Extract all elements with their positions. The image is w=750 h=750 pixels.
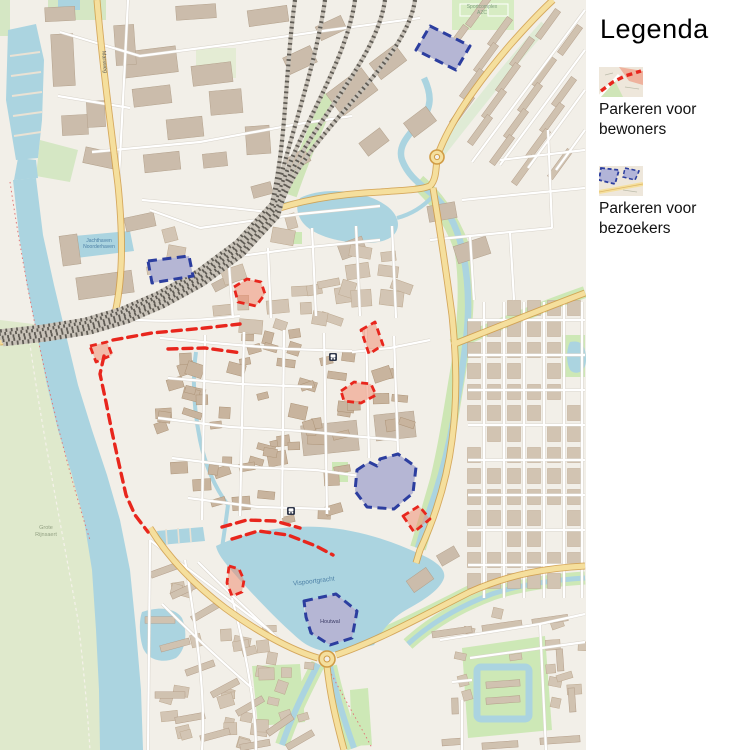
legend-item-resident-parking: Parkeren voor bewoners [599,67,750,140]
screenshot-stage: JachthavenNoorderhavenVispoortgrachtHout… [0,0,750,750]
resident-parking-area [234,279,265,306]
legend-title: Legenda [600,14,750,45]
red-dashed-zone-icon [599,67,643,97]
legend-panel: Legenda Parkeren voor bewoners [586,0,750,750]
city-map[interactable]: JachthavenNoorderhavenVispoortgrachtHout… [0,0,586,750]
map-label: Noorderhaven [83,244,115,250]
map-label: Rijnsaert [35,532,57,538]
legend-item-label: Parkeren voor bezoekers [599,199,750,239]
map-label: Grote [39,525,53,531]
map-label: Houtwal [320,619,340,625]
train-station-icon [287,507,295,515]
train-station-icon [329,353,337,361]
blue-dashed-zone-icon [599,166,643,196]
legend-item-label: Parkeren voor bewoners [599,100,750,140]
map-label: AZC [477,10,487,16]
legend-item-visitor-parking: Parkeren voor bezoekers [599,166,750,239]
